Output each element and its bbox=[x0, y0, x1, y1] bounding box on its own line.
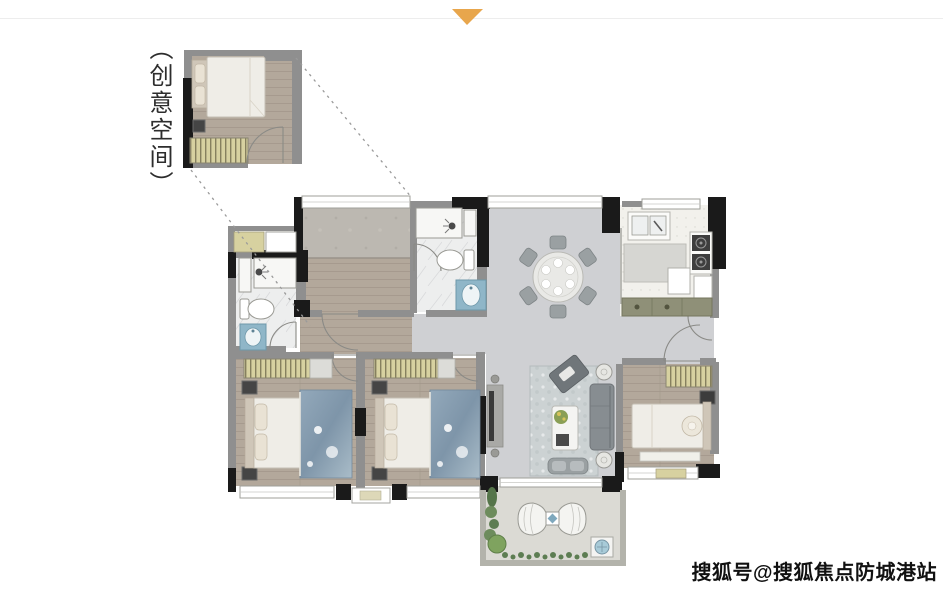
plant-icon bbox=[554, 410, 568, 424]
inset-floorplan bbox=[183, 50, 302, 168]
inset-bed bbox=[192, 57, 265, 117]
bath-shelf bbox=[464, 210, 476, 236]
main-floorplan bbox=[228, 196, 726, 566]
patio-table bbox=[546, 512, 559, 525]
nightstand bbox=[242, 467, 257, 480]
inset-nightstand bbox=[193, 120, 205, 132]
window-dining bbox=[488, 196, 602, 208]
toilet-icon bbox=[437, 250, 474, 270]
speaker-icon bbox=[491, 375, 499, 383]
vanity-sink-icon bbox=[240, 324, 266, 350]
window-bedroom-left bbox=[240, 486, 334, 498]
wardrobe bbox=[374, 359, 438, 378]
wardrobe bbox=[244, 359, 310, 378]
tray bbox=[556, 434, 569, 446]
bar-counter bbox=[622, 298, 712, 316]
fridge bbox=[668, 268, 690, 294]
sofa bbox=[590, 384, 614, 450]
bed-bench bbox=[640, 452, 700, 461]
speaker-icon bbox=[491, 449, 499, 457]
balcony-threshold bbox=[500, 478, 602, 487]
corridor-wood-floor bbox=[300, 314, 412, 354]
window-multifunction bbox=[302, 196, 410, 208]
sink-basin-icon bbox=[632, 216, 648, 235]
appliance-box bbox=[694, 276, 712, 298]
window-kitchen bbox=[642, 199, 700, 209]
side-table bbox=[596, 452, 612, 468]
multifunction-floor-top bbox=[300, 205, 412, 258]
ac-unit-box bbox=[352, 488, 390, 503]
shower-area bbox=[416, 208, 462, 238]
floorplan-page: （创意空间） 搜狐号@搜狐焦点防城港站 bbox=[0, 0, 943, 590]
coffee-table bbox=[552, 406, 578, 450]
nightstand bbox=[242, 381, 257, 394]
wardrobe bbox=[666, 366, 712, 387]
toilet-icon bbox=[240, 299, 274, 319]
tv-console bbox=[487, 375, 503, 457]
corridor-right-floor bbox=[622, 316, 714, 364]
window-bedroom-right bbox=[628, 467, 698, 479]
window-bedroom-middle bbox=[407, 486, 480, 498]
callout-line bbox=[296, 58, 412, 198]
vanity-sink-icon bbox=[456, 280, 486, 310]
bed bbox=[632, 402, 711, 450]
bed bbox=[245, 390, 352, 478]
side-table bbox=[596, 364, 612, 380]
inset-label: （创意空间） bbox=[141, 36, 175, 206]
cabinet bbox=[438, 359, 455, 378]
washer bbox=[266, 232, 296, 252]
round-bush bbox=[488, 535, 506, 553]
multifunction-floor-wood bbox=[300, 258, 412, 314]
inset-wardrobe bbox=[190, 138, 248, 163]
watermark: 搜狐号@搜狐焦点防城港站 bbox=[691, 556, 937, 585]
stove bbox=[690, 232, 712, 274]
floor-drain-icon bbox=[591, 537, 613, 557]
lounge-chair bbox=[557, 503, 586, 535]
stool-bench bbox=[548, 458, 588, 474]
bed bbox=[375, 390, 480, 478]
nightstand bbox=[372, 467, 387, 480]
nightstand bbox=[372, 381, 387, 394]
laundry-cabinet bbox=[234, 232, 264, 252]
pointer-triangle-icon bbox=[452, 9, 483, 25]
sink-counter bbox=[628, 212, 670, 240]
cabinet bbox=[310, 359, 332, 378]
corridor-mid-floor bbox=[410, 314, 488, 354]
lounge-chair bbox=[518, 503, 547, 535]
bath-shelf bbox=[239, 258, 251, 292]
